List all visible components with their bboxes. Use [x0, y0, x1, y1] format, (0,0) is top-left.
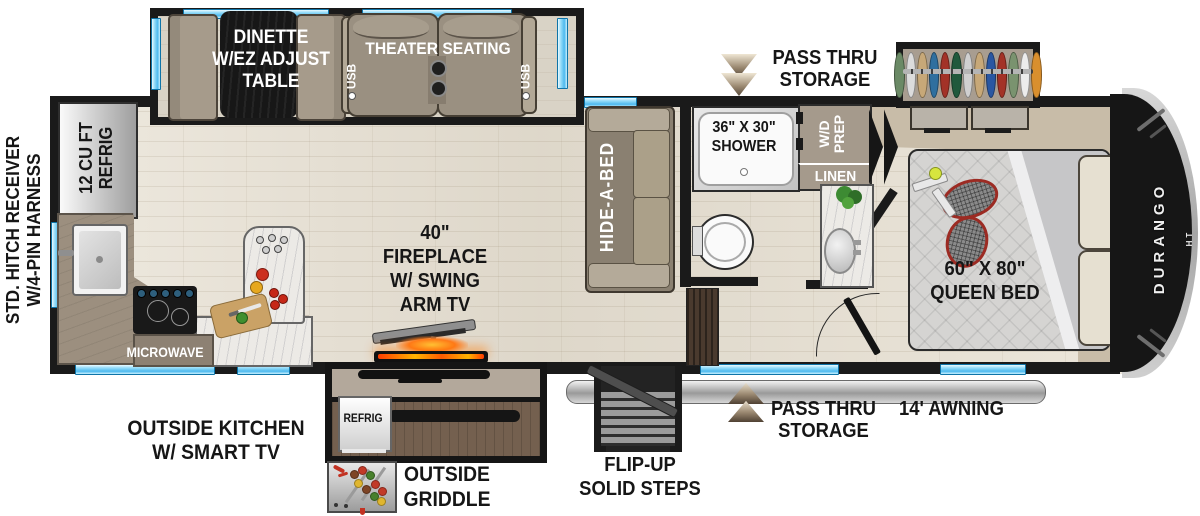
nightstand-base [985, 128, 1011, 133]
hide-a-bed-label: HIDE-A-BED [598, 112, 618, 283]
yellow-pepper-icon [250, 281, 263, 294]
usb-port-icon [348, 92, 356, 100]
kitchen-sink [72, 224, 128, 296]
red-pepper-icon [256, 268, 269, 281]
bath-wall [680, 107, 691, 287]
theater-seat-headrest [353, 15, 429, 39]
hitch-label: STD. HITCH RECEIVER W/4-PIN HARNESS [3, 116, 47, 344]
nightstand-base [924, 128, 950, 133]
kabob-icon [378, 487, 387, 496]
pass-thru-arrow-down-icon [721, 54, 757, 100]
theater-label: THEATER SEATING [357, 40, 519, 58]
drawer-handle [388, 410, 520, 422]
entry-mat [686, 288, 719, 366]
spice-jar-icon [280, 236, 288, 244]
brand-logo: DURANGO HT [1135, 133, 1179, 343]
cup-holder [430, 80, 447, 97]
usb-label: USB [346, 60, 359, 94]
toilet [696, 214, 754, 270]
linen-label: LINEN [814, 169, 855, 185]
tennis-ball-icon [929, 167, 942, 180]
stove-cooktop [133, 286, 197, 334]
griddle-knob [344, 504, 348, 508]
usb-label: USB [520, 60, 533, 94]
floorplan-durango-fifth-wheel: STD. HITCH RECEIVER W/4-PIN HARNESS DINE… [0, 0, 1200, 516]
sofa-cushion [633, 197, 670, 265]
spice-jar-icon [274, 245, 282, 253]
window [151, 18, 161, 90]
outside-refrigerator-base [342, 449, 386, 453]
shower-drain [740, 168, 748, 176]
theater-seat-headrest [443, 15, 519, 39]
tomato-icon [270, 300, 280, 310]
pass-thru-arrow-up-icon [728, 382, 764, 424]
fireplace-label: 40" FIREPLACE W/ SWING ARM TV [372, 221, 497, 317]
sofa-cushion [633, 130, 670, 198]
nightstand [910, 106, 968, 130]
window [557, 18, 568, 89]
cabinet-hinge [796, 112, 803, 124]
nightstand [971, 106, 1029, 130]
griddle-drip [360, 508, 365, 515]
kabob-icon [362, 485, 371, 494]
brand-logo-sub: HT [1186, 133, 1194, 343]
closet-rod [903, 69, 1033, 74]
cup-holder [430, 60, 447, 77]
vanity-faucet [853, 240, 861, 245]
griddle-knob [334, 503, 338, 507]
outside-tv [358, 370, 490, 379]
outside-tv-base [398, 379, 442, 383]
pass-thru-top-label: PASS THRU STORAGE [761, 47, 890, 91]
plant-icon [842, 197, 854, 209]
vanity-sink [824, 228, 856, 274]
refrigerator-label: 12 CU FT REFRIG [76, 103, 116, 213]
kabob-icon [377, 497, 386, 506]
green-pepper-icon [236, 312, 248, 324]
microwave-label: MICROWAVE [122, 346, 208, 360]
pass-thru-bottom-label: PASS THRU STORAGE [761, 398, 885, 442]
shower-label: 36" X 30" SHOWER [699, 118, 789, 156]
queen-bed-label: 60" X 80" QUEEN BED [910, 257, 1059, 305]
wd-prep-label: W/D PREP [817, 108, 847, 160]
awning-label: 14' AWNING [899, 399, 1032, 420]
toilet-tank [692, 226, 703, 256]
outside-kitchen-label: OUTSIDE KITCHEN W/ SMART TV [124, 417, 308, 465]
window [700, 364, 839, 375]
usb-port-icon [522, 92, 530, 100]
sink-faucet [58, 250, 74, 256]
flip-up-steps-label: FLIP-UP SOLID STEPS [572, 453, 708, 501]
spice-jar-icon [262, 246, 270, 254]
hanging-clothes-icon [904, 52, 1032, 98]
outside-refrig-label: REFRIG [341, 413, 386, 425]
spice-jar-icon [268, 234, 276, 242]
window [940, 364, 1026, 375]
cabinet-hinge [796, 138, 803, 150]
kabob-icon [366, 471, 375, 480]
dinette-label: DINETTE W/EZ ADJUST TABLE [202, 27, 340, 93]
half-wall [688, 277, 758, 286]
outside-griddle-label: OUTSIDE GRIDDLE [400, 462, 494, 512]
spice-jar-icon [256, 236, 264, 244]
vanity-faucet [853, 250, 861, 255]
brand-logo-text: DURANGO [1152, 133, 1168, 343]
